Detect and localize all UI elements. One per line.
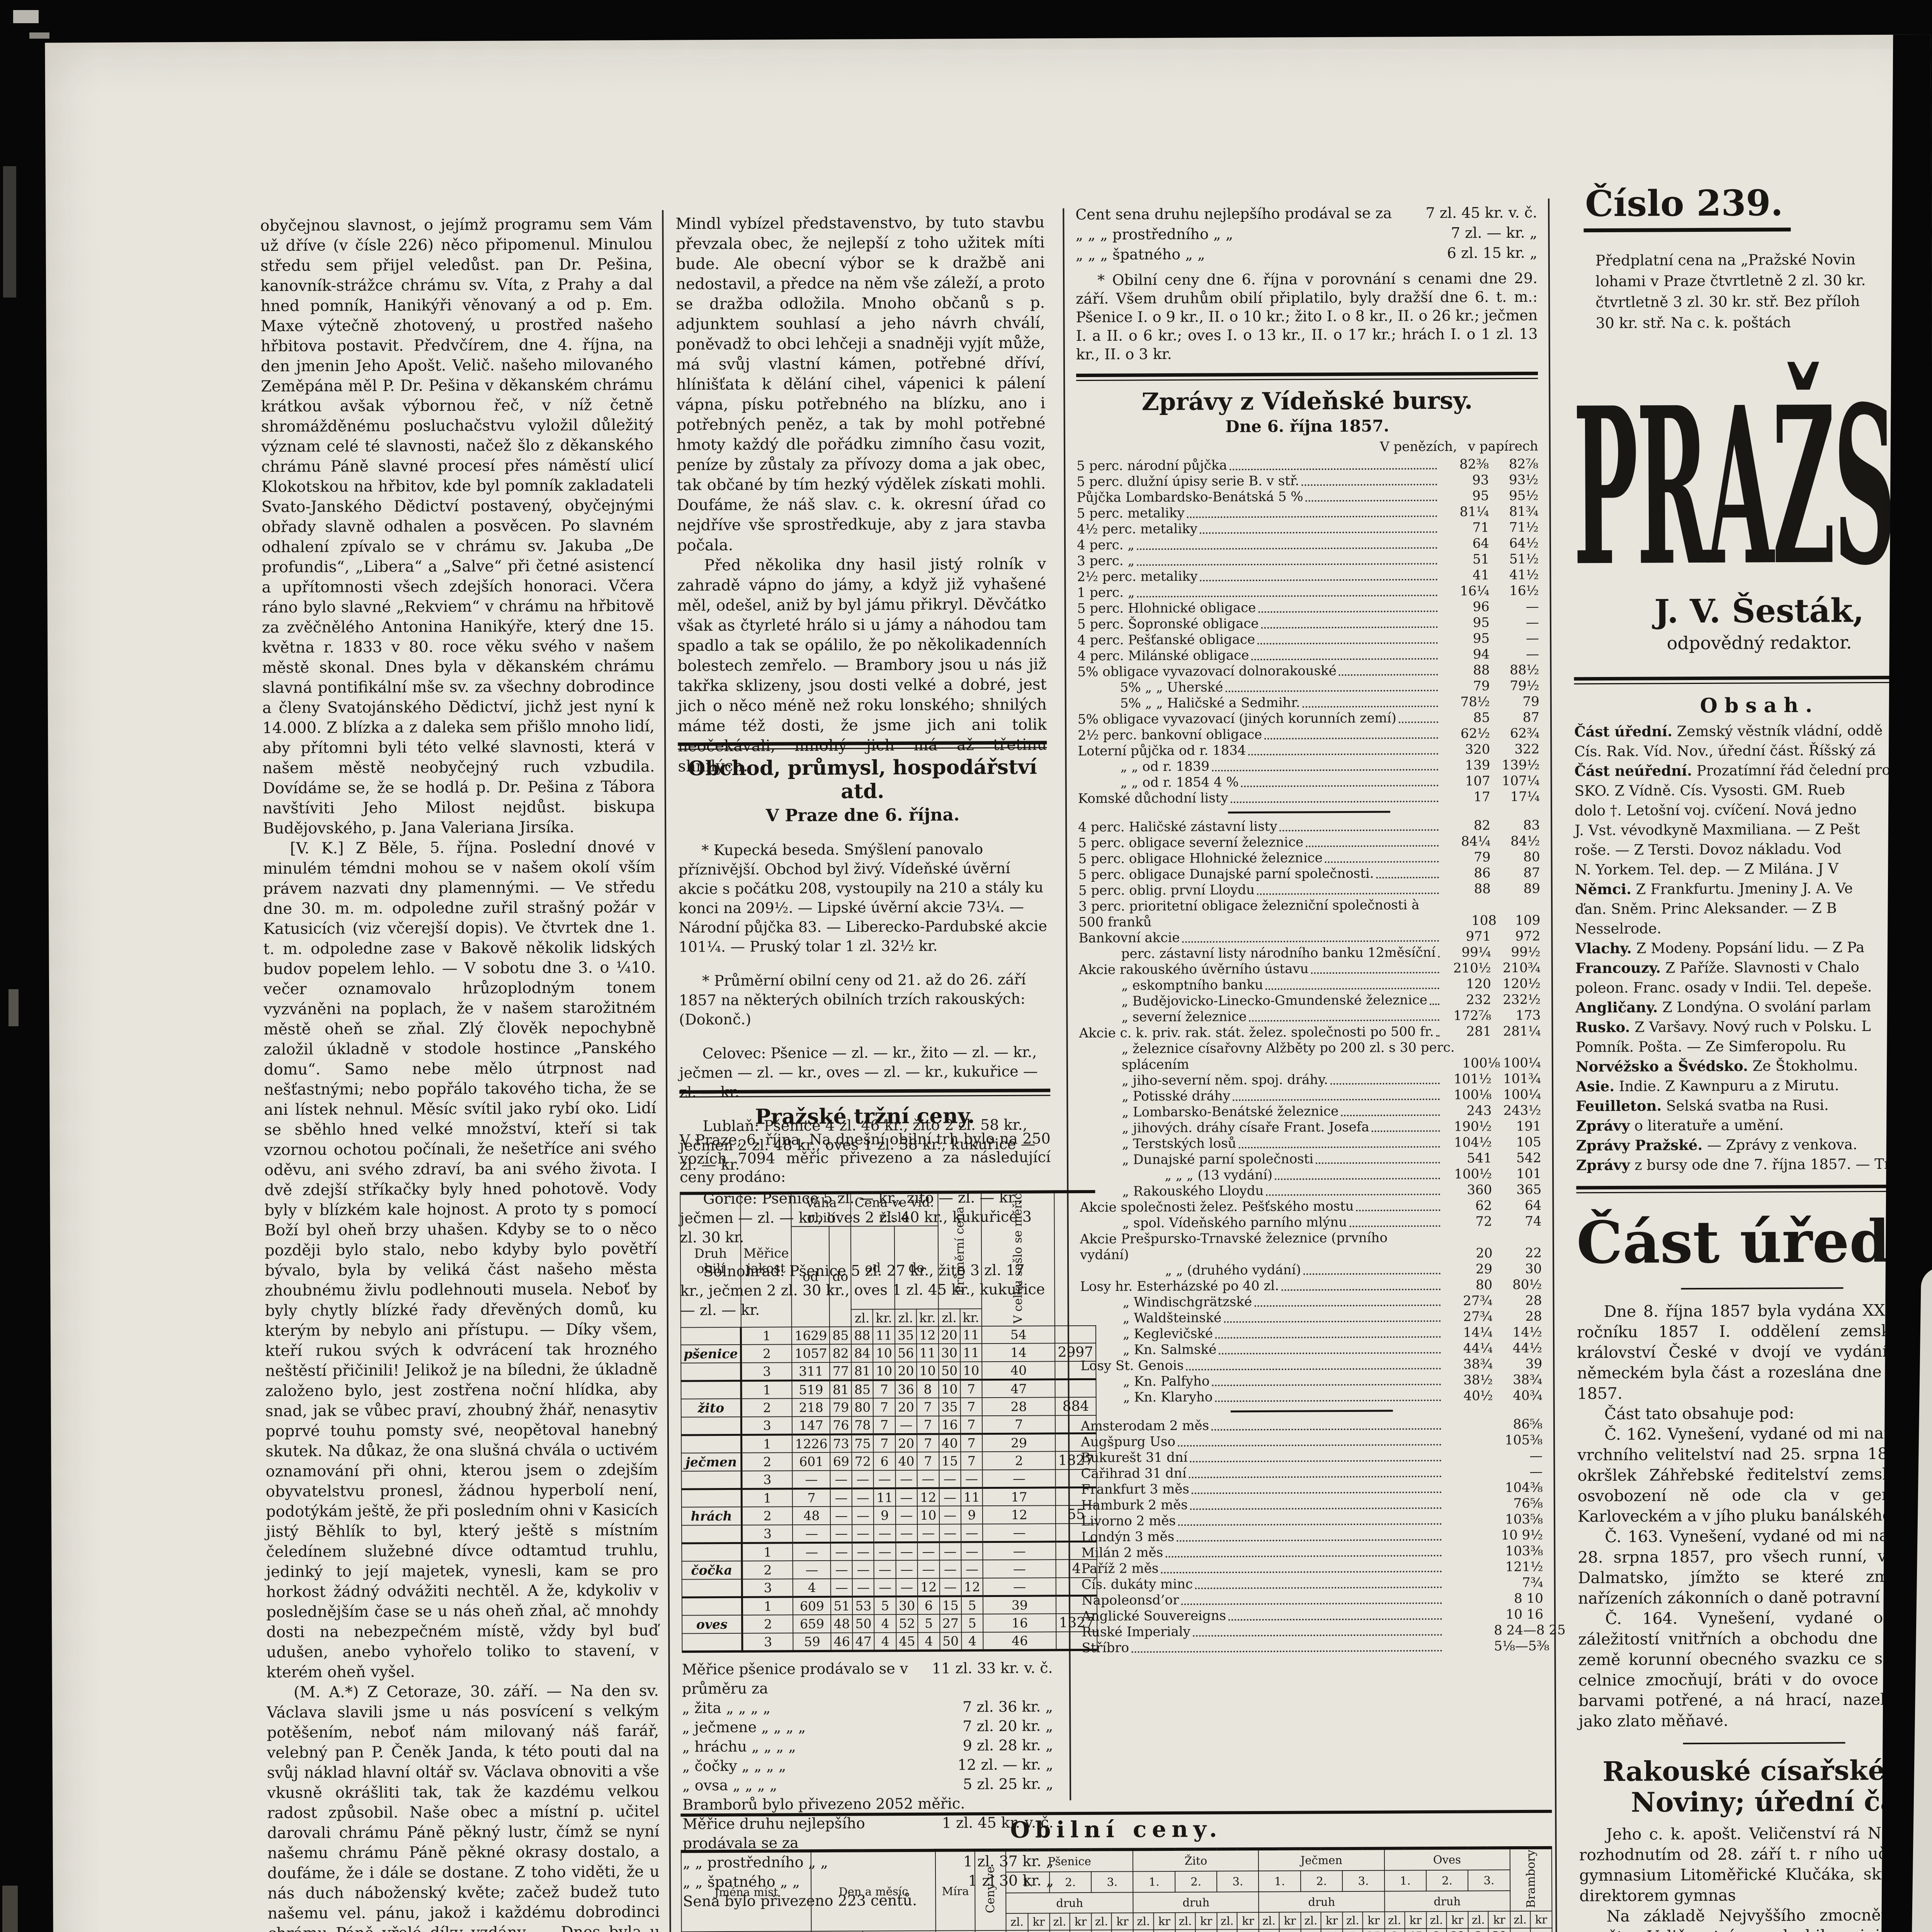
table-cell: 5 <box>961 1596 983 1614</box>
contents-text: SKO. Z Vídně. Cís. Vysosti. GM. Rueb <box>1575 781 1845 799</box>
leader-dots <box>1211 1428 1441 1431</box>
price-money: 29 <box>1443 1261 1492 1277</box>
table-cell: — <box>917 1524 939 1542</box>
price-paper: 62¾ <box>1490 726 1539 742</box>
table-cell: 45 <box>1153 1930 1175 1932</box>
table-cell: 12 <box>961 1578 983 1596</box>
security-label: Akcie rakouského úvěrního ústavu <box>1079 961 1309 978</box>
security-label: „ železnice císařovny Alžběty po 200 zl.… <box>1079 1040 1455 1073</box>
price-value: 7 zl. 36 kr. „ <box>955 1697 1053 1716</box>
table-cell: 9 <box>1049 1930 1070 1932</box>
price-money: 101½ <box>1442 1071 1492 1087</box>
price-paper: 79½ <box>1490 678 1539 694</box>
leader-dots <box>1257 642 1438 645</box>
bursa-row: 5 perc. národní půjčka 82⅜ 82⅞ <box>1077 456 1538 474</box>
contents-text: Nesselrode. <box>1575 920 1661 937</box>
bursa-row: „ „ (druhého vydání) 29 30 <box>1080 1261 1542 1279</box>
bursa-row: 4 perc. Haličské zástavní listy 82 83 <box>1078 818 1540 835</box>
contents-text: Z Londýna. O svolání parlam <box>1662 998 1871 1015</box>
price-paper: — <box>1490 631 1539 647</box>
security-label: Loterní půjčka od r. 1834 <box>1078 743 1246 759</box>
contents-line: ďan. Sněm. Princ Aleksander. — Z B <box>1575 898 1932 919</box>
table-row: 116298588113512201154 <box>681 1326 1096 1345</box>
leader-dots <box>1280 829 1439 832</box>
column-header: kr. <box>917 1309 939 1326</box>
table-cell: 46 <box>831 1633 853 1651</box>
official-paragraph: Č. 164. Vynešení, vydané od mini záležit… <box>1578 1607 1932 1731</box>
table-cell: — <box>852 1578 874 1597</box>
bursa-row: „ spol. Vídeňského parního mlýnu 72 74 <box>1080 1214 1542 1231</box>
leader-dots <box>1281 1289 1440 1291</box>
column-header: druh <box>1133 1892 1259 1913</box>
price-money: 81¼ <box>1440 504 1489 520</box>
exchange-label: Stříbro <box>1082 1640 1129 1656</box>
table-cell: — <box>874 1524 896 1543</box>
market-paragraph: * Kupecká beseda. Smýšlení panovalo příz… <box>678 839 1048 956</box>
bursa-row: 5 perc. Šopronské obligace 95 — <box>1077 615 1539 633</box>
subscription-line: Předplatní cena na „Pražské Novin <box>1595 248 1932 271</box>
bursa-row: 5 perc. obligace Hlohnické železnice 79 … <box>1078 849 1540 867</box>
price-money: 27¾ <box>1443 1293 1492 1309</box>
table-cell <box>681 1435 742 1453</box>
leader-dots <box>1190 1460 1442 1463</box>
security-label: 5% „ „ Haličské a Sedmihr. <box>1078 695 1300 712</box>
price-paper: 38¾ <box>1493 1372 1542 1388</box>
leader-dots <box>1241 785 1439 787</box>
price-paper: 101 <box>1492 1166 1541 1182</box>
table-cell: 48 <box>793 1507 830 1525</box>
price-value: 6 zl. 15 kr. „ <box>1439 243 1537 263</box>
table-cell: — <box>831 1524 852 1543</box>
security-label: „ jiho-severní něm. spoj. dráhy. <box>1079 1072 1328 1089</box>
leader-dots <box>1311 972 1439 974</box>
contents-line: Pomník. Pošta. — Ze Simferopolu. Ru <box>1576 1036 1932 1057</box>
table-cell: 2 <box>742 1561 793 1579</box>
price-money: 100½ <box>1442 1166 1492 1182</box>
table-cell: 10 <box>960 1362 982 1380</box>
table-cell: 9 <box>874 1506 896 1524</box>
table-cell: 659 <box>793 1615 831 1633</box>
price-money: 93 <box>1439 472 1489 488</box>
newspaper-scan: obyčejnou slavnost, o jejímž programu se… <box>0 0 1932 1932</box>
column-header: od <box>851 1226 895 1309</box>
exchange-label: Augšpurg Uso <box>1081 1434 1175 1450</box>
table-cell: 7 <box>873 1380 895 1398</box>
leader-dots <box>1212 769 1438 772</box>
leader-dots <box>1137 547 1437 550</box>
price-paper: 87 <box>1490 710 1539 726</box>
price-line: Bramborů bylo přivezeno 2052 měřic. <box>682 1793 1053 1814</box>
table-cell: 59 <box>793 1633 831 1651</box>
table-cell: — <box>939 1542 961 1560</box>
table-cell: 48 <box>1279 1929 1301 1932</box>
table-row: 34————12—12— <box>682 1578 1097 1597</box>
price-value: 5 zl. 25 kr. „ <box>955 1774 1053 1794</box>
price-money: 71 <box>1440 520 1489 536</box>
contents-category: Norvéžsko a Švédsko. <box>1576 1057 1748 1075</box>
contents-category: Francouzy. <box>1575 959 1661 976</box>
column-header: Pšenice <box>1006 1849 1133 1872</box>
price-paper: 322 <box>1490 742 1539 758</box>
table-row: 15198185736810747 <box>681 1379 1096 1399</box>
table-cell: 4 <box>918 1632 940 1650</box>
bursa-row: Akcie c. k. priv. rak. stát. želez. spol… <box>1079 1024 1541 1041</box>
price-money: 541 <box>1442 1150 1492 1167</box>
price-label: „ ovsa „ „ „ „ <box>682 1774 955 1795</box>
table-cell: 11 <box>960 1326 982 1344</box>
hay-price-line: „ „ „ špatného „ „ 6 zl. 15 kr. „ <box>1076 243 1537 265</box>
binding-mark <box>13 10 39 23</box>
table-cell: — <box>831 1560 852 1578</box>
table-cell: 35 <box>895 1327 917 1344</box>
security-label: „ Waldšteinské <box>1080 1310 1222 1327</box>
table-cell: 3 <box>742 1525 793 1543</box>
table-cell: 30 <box>1488 1928 1510 1932</box>
newspaper-page: obyčejnou slavnost, o jejímž programu se… <box>45 34 1932 1932</box>
bursa-row: Komské důchodní listy 17 17¼ <box>1078 789 1540 807</box>
column-header: Brambory <box>1510 1848 1552 1912</box>
table-cell: 1226 <box>793 1434 830 1452</box>
security-label: 2½ perc. bankovní obligace <box>1078 727 1262 743</box>
table-cell: 6 <box>874 1452 896 1470</box>
contents-line: Asie. Indie. Z Kawnpuru a z Mirutu. <box>1576 1075 1932 1096</box>
exchange-label: Milán 2 měs <box>1081 1545 1163 1561</box>
table-cell: 10 <box>917 1506 939 1524</box>
leader-dots <box>1178 1523 1442 1526</box>
column-header: do <box>829 1226 851 1327</box>
leader-dots <box>1189 1476 1442 1478</box>
security-label: 2½ perc. metaliky <box>1077 569 1197 585</box>
price-value: 7 zl. 20 kr. „ <box>955 1716 1053 1736</box>
grain-comparison-paragraph: * Obilní ceny dne 6. října v porovnání s… <box>1076 269 1538 364</box>
table-cell: — <box>918 1560 940 1578</box>
contents-line: Vlachy. Z Modeny. Popsání lidu. — Z Pa <box>1575 937 1932 958</box>
price-money: 38¾ <box>1443 1356 1493 1372</box>
table-cell: 12 <box>917 1326 939 1344</box>
bursa-row: „ „ od r. 1854 4 % 107 107¼ <box>1078 773 1540 791</box>
price-money: 40½ <box>1444 1388 1493 1404</box>
section-rule <box>1574 675 1932 684</box>
table-row: 33117781102010501040 <box>681 1361 1096 1381</box>
table-cell: 3 <box>1384 1929 1405 1932</box>
price-money: 100⅛ <box>1442 1087 1492 1103</box>
table-cell: 147 <box>792 1417 830 1435</box>
bursa-row: 5 perc. metaliky 81¼ 81¾ <box>1077 504 1539 522</box>
contents-text: Pomník. Pošta. — Ze Simferopolu. Ru <box>1576 1037 1846 1055</box>
price-money: 86 <box>1441 865 1491 881</box>
unit-header: zl. <box>1301 1912 1321 1929</box>
price-paper: 95½ <box>1489 488 1538 504</box>
bursa-row: Anglické Souvereigns 10 16 <box>1082 1607 1543 1624</box>
price-money: 64 <box>1440 536 1489 552</box>
security-label: „ Terstských losů <box>1080 1136 1236 1152</box>
security-label: 4 perc. Haličské zástavní listy <box>1078 819 1277 835</box>
price-paper: 80 <box>1490 849 1540 866</box>
bursa-row: „ „ „ (13 vydání) 100½ 101 <box>1080 1166 1541 1184</box>
table-cell: 10 <box>873 1344 895 1362</box>
table-cell: — <box>896 1560 918 1578</box>
price-paper: 101¾ <box>1492 1071 1541 1087</box>
table-cell: 5 <box>1343 1929 1363 1932</box>
table-cell: 69 <box>830 1452 852 1470</box>
table-cell: 14 <box>982 1343 1055 1362</box>
contents-category: Angličany. <box>1575 998 1658 1016</box>
bursa-row: „ Budějovicko-Linecko-Gmundenské železni… <box>1079 992 1541 1010</box>
small-rule <box>1681 1287 1843 1289</box>
table-cell <box>682 1579 742 1597</box>
price-money: 120 <box>1442 976 1491 992</box>
table-cell: 5 <box>1133 1930 1153 1932</box>
column-header: druh <box>1384 1891 1510 1912</box>
security-label: 5 perc. oblig. první Lloydu <box>1078 882 1255 899</box>
table-cell: 7 <box>961 1434 983 1452</box>
security-label: 3 perc. prioritetní obligace železniční … <box>1078 897 1448 930</box>
bursa-row: 4½ perc. metaliky 71 71½ <box>1077 520 1539 537</box>
price-money: 82⅜ <box>1439 456 1489 473</box>
leader-dots <box>1249 1019 1439 1022</box>
security-label: 4 perc. „ <box>1077 537 1134 553</box>
price-paper: 8 24—8 25 <box>1494 1622 1543 1639</box>
vienna-news-paragraph: Jeho c. k. apošt. Veličenství rá Nejvyšš… <box>1579 1823 1932 1906</box>
price-money: 232 <box>1442 992 1491 1008</box>
bursa-row: Cís. dukáty minc 7¾ <box>1082 1575 1543 1593</box>
table-cell: 1629 <box>792 1327 830 1344</box>
leader-dots <box>1231 801 1439 803</box>
price-paper: 74 <box>1492 1214 1542 1230</box>
price-line: „ ječmene „ „ „ „ 7 zl. 20 kr. „ <box>682 1716 1053 1737</box>
security-label: „ severní železnice <box>1079 1009 1247 1026</box>
security-label: „ Keglevičské <box>1080 1326 1213 1342</box>
table-cell: 50 <box>939 1362 960 1380</box>
table-cell: 601 <box>793 1452 830 1471</box>
contents-category: Část neúřední. <box>1574 762 1692 779</box>
contents-text: Z Paříže. Slavnosti v Chalo <box>1665 959 1859 976</box>
table-cell: 3 <box>1468 1929 1488 1932</box>
bursa-row: Loterní půjčka od r. 1834 320 322 <box>1078 742 1539 759</box>
price-paper: 100¼ <box>1500 1055 1541 1071</box>
table-cell <box>681 1381 741 1399</box>
unit-header: kr <box>1195 1913 1217 1930</box>
table-row: hrách248——9—10—91255 <box>682 1505 1097 1526</box>
contents-category: Feuilleton. <box>1576 1097 1662 1114</box>
table-row: čočka2—————————4 <box>682 1560 1097 1580</box>
table-cell: 11 <box>1006 1930 1028 1932</box>
unit-header: zl. <box>1133 1913 1153 1930</box>
bursa-row: Akcie Prešpursko-Trnavské železnice (prv… <box>1080 1230 1542 1263</box>
table-cell: 80 <box>852 1398 873 1416</box>
bursa-row: Livorno 2 měs 103⅝ <box>1081 1512 1543 1529</box>
price-paper: 40¾ <box>1493 1388 1543 1404</box>
table-cell: 20 <box>895 1362 917 1380</box>
price-money: 108 <box>1453 913 1497 929</box>
table-cell: 16 <box>983 1614 1056 1632</box>
contents-line: Zprávy Pražské. — Zprávy z venkova. <box>1576 1134 1932 1155</box>
price-paper: 103⅜ <box>1493 1543 1543 1560</box>
security-label: Losy St. Genois <box>1080 1358 1184 1374</box>
table-cell: — <box>831 1543 852 1561</box>
price-paper: 139½ <box>1490 757 1539 774</box>
table-cell <box>682 1543 742 1561</box>
column-header: Měřice jakost <box>740 1193 792 1327</box>
column-header: Žito <box>1133 1849 1259 1872</box>
price-money: 38½ <box>1443 1372 1493 1388</box>
unit-header: kr <box>1321 1912 1342 1929</box>
contents-line: J. Vst. vévodkyně Maxmiliana. — Z Pešt <box>1575 819 1932 840</box>
table-cell: 1 <box>742 1489 793 1507</box>
leader-dots <box>1228 1618 1442 1621</box>
leader-dots <box>1303 1273 1440 1275</box>
price-paper: 14½ <box>1493 1325 1542 1341</box>
price-money: 100⅛ <box>1459 1055 1500 1071</box>
vienna-news-title-line2: Noviny; úřední čá <box>1579 1786 1932 1818</box>
bursa-row: „ železnice císařovny Alžběty po 200 zl.… <box>1079 1039 1541 1073</box>
price-paper: 64 <box>1492 1198 1541 1214</box>
unit-header: kr <box>1530 1911 1552 1928</box>
unit-header: zl. <box>1006 1913 1028 1930</box>
table-cell: 30 <box>939 1344 960 1362</box>
section-title: Zprávy z Vídeňské bursy. <box>1076 386 1538 416</box>
price-line: „ ovsa „ „ „ „ 5 zl. 25 kr. „ <box>682 1774 1053 1795</box>
leader-dots <box>1316 1162 1440 1164</box>
price-money: 84¼ <box>1441 833 1490 850</box>
table-cell: 30 <box>1112 1930 1133 1932</box>
contents-line: roše. — Z Tersti. Dovoz nákladu. Vod <box>1575 838 1932 860</box>
bursa-row: „ Windischgrätzské 27¾ 28 <box>1080 1293 1542 1311</box>
table-cell <box>681 1327 741 1345</box>
vienna-news-title: Rakouské císařské Ví Noviny; úřední čá <box>1579 1755 1932 1818</box>
price-paper: 86⅝ <box>1493 1417 1543 1433</box>
contents-line: Zprávy o literatuře a umění. <box>1576 1114 1932 1136</box>
binding-mark <box>9 989 19 1026</box>
table-cell: — <box>939 1470 961 1488</box>
section-rule <box>679 1088 1050 1097</box>
section-obilni-ceny: Obilní ceny. Jména míst Den a měsíc Míra… <box>680 1810 1553 1932</box>
price-paper: 281¼ <box>1491 1024 1541 1040</box>
security-label: Losy hr. Esterházské po 40 zl. <box>1080 1278 1279 1295</box>
section-rule <box>1076 372 1538 381</box>
table-cell: 7 <box>793 1488 830 1507</box>
leader-dots <box>1212 1384 1441 1386</box>
price-paper: 76⅝ <box>1493 1496 1543 1512</box>
contents-line: dolo †. Letošní voj. cvíčení. Nová jedno <box>1575 799 1932 820</box>
table-cell: čočka <box>682 1561 742 1580</box>
bursa-row: Cařihrad 31 dní — <box>1081 1464 1543 1482</box>
column-header: 1. <box>1006 1872 1049 1893</box>
table-cell: ječmen <box>681 1453 742 1471</box>
unit-header: zl. <box>1468 1912 1488 1929</box>
column-header: 2. <box>1049 1872 1092 1893</box>
table-cell: 2 <box>741 1398 792 1417</box>
leader-dots <box>1251 658 1438 660</box>
price-money: 360 <box>1442 1182 1492 1198</box>
price-money: 95 <box>1440 631 1490 647</box>
table-cell: 7 <box>960 1398 982 1416</box>
table-cell: 8 <box>917 1380 939 1398</box>
contents-text: Indie. Z Kawnpuru a z Mirutu. <box>1619 1077 1839 1094</box>
table-cell: 4 <box>793 1579 831 1597</box>
table-cell: pšenice <box>681 1345 741 1363</box>
bursa-row: 5% obligace vyvazovací dolnorakouské 88 … <box>1077 662 1539 680</box>
price-paper: 30 <box>1492 1261 1542 1277</box>
table-cell: 9 <box>961 1506 983 1524</box>
table-cell: 50 <box>853 1614 874 1633</box>
table-cell: — <box>852 1470 874 1488</box>
price-money: 94 <box>1440 646 1490 663</box>
table-cell: 5 <box>961 1614 983 1632</box>
table-cell <box>682 1633 742 1652</box>
table-cell: 7 <box>917 1434 939 1452</box>
masthead-title: PRAŽSKÉ <box>1573 360 1767 602</box>
table-cell: 29 <box>982 1434 1055 1452</box>
table-cell: — <box>961 1542 983 1560</box>
table-cell: 6 <box>918 1596 940 1614</box>
price-value: 7 zl. — kr. „ <box>1443 223 1537 243</box>
unit-header: kr <box>1363 1912 1384 1929</box>
issue-number: Číslo 239. <box>1583 182 1791 232</box>
table-cell: 47 <box>853 1633 874 1651</box>
bursa-row: „ Kn. Salmské 44¼ 44½ <box>1080 1340 1542 1358</box>
leader-dots <box>1181 1602 1442 1605</box>
leader-dots <box>1200 531 1437 534</box>
table-cell: — <box>983 1469 1056 1488</box>
security-label: Půjčka Lombardsko-Benátská 5 % <box>1077 489 1303 506</box>
binding-mark <box>2 1886 18 1932</box>
leader-dots <box>1265 988 1439 990</box>
table-cell: 15 <box>1028 1930 1049 1932</box>
table-cell: — <box>874 1470 896 1488</box>
hay-price-line: Cent sena druhu nejlepšího prodával se z… <box>1075 202 1537 224</box>
exchange-label: Livorno 2 měs <box>1081 1513 1176 1529</box>
table-cell: 2 <box>741 1344 792 1363</box>
table-cell <box>682 1489 742 1507</box>
exchange-label: Cařihrad 31 dní <box>1081 1466 1186 1482</box>
leader-dots <box>1261 626 1437 629</box>
price-money: 971 <box>1441 929 1491 945</box>
article-paragraph: Mindl vybízel představenstvo, by tuto st… <box>675 212 1046 555</box>
table-row: ječmen26016972640715721827 <box>681 1451 1096 1471</box>
price-paper: 17¼ <box>1490 789 1540 805</box>
price-paper: 44½ <box>1493 1340 1542 1357</box>
leader-dots <box>1225 690 1438 692</box>
security-label: „ eskomptního banku <box>1079 977 1263 994</box>
table-cell: 1 <box>742 1597 793 1615</box>
table-cell: — <box>830 1470 852 1488</box>
unit-header: kr <box>1446 1912 1468 1929</box>
table-cell: 609 <box>793 1597 831 1615</box>
table-cell: 25 <box>1363 1929 1384 1932</box>
leader-dots <box>1224 1320 1441 1323</box>
price-paper: 103⅝ <box>1493 1512 1543 1528</box>
price-paper: 88½ <box>1490 662 1539 679</box>
price-label: „ hráchu „ „ „ „ <box>682 1736 955 1756</box>
article-paragraph: (M. A.*) Z Cetoraze, 30. září. — Na den … <box>267 1681 661 1932</box>
table-cell: — <box>793 1471 830 1489</box>
leader-dots <box>1436 1035 1440 1037</box>
price-line: „ hráchu „ „ „ „ 9 zl. 28 kr. „ <box>682 1735 1053 1756</box>
security-label: „ „ (druhého vydání) <box>1080 1262 1301 1279</box>
price-money: 95 <box>1439 488 1489 504</box>
table-cell: 20 <box>895 1398 917 1416</box>
security-label: Komské důchodní listy <box>1078 790 1228 807</box>
price-label: Cent sena druhu nejlepšího prodával se z… <box>1075 203 1418 224</box>
security-label: „ Kn. Palfyho <box>1080 1374 1209 1390</box>
table-row: 16095153530615539 <box>682 1595 1097 1615</box>
price-value: 12 zl. — kr. „ <box>950 1755 1053 1774</box>
price-paper: 82⅞ <box>1489 456 1538 473</box>
table-cell: 3 <box>1427 1929 1447 1932</box>
price-label: Bramborů bylo přivezeno 2052 měřic. <box>682 1793 1046 1814</box>
unit-header: kr <box>1153 1913 1175 1930</box>
